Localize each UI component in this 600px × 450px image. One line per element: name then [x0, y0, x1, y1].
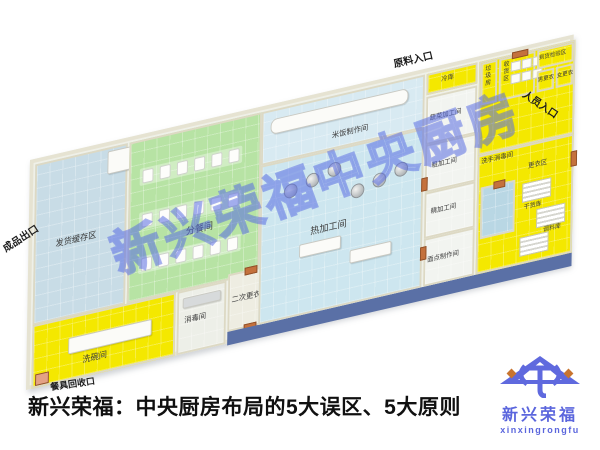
logo-romanized: xinxingrongfu [492, 425, 588, 435]
label-receiving: 收货区 [502, 60, 509, 83]
processing-door [421, 177, 428, 192]
label-garbage-room: 垃圾房 [483, 64, 490, 87]
kitchen-floorplan-image: 发货缓存区 洗碗间 分餐间 消毒间 二次更衣 [0, 0, 600, 450]
room-office-bluefloor [480, 180, 515, 240]
floorplan-surface: 发货缓存区 洗碗间 分餐间 消毒间 二次更衣 [26, 34, 574, 390]
personnel-entrance-door [570, 150, 577, 167]
processing-door [420, 246, 427, 261]
logo-mark-icon [492, 354, 588, 398]
label-material-entrance: 原料入口 [392, 47, 434, 71]
logo-company-name: 新兴荣福 [492, 401, 588, 425]
company-logo: 新兴荣福 xinxingrongfu [492, 354, 588, 435]
